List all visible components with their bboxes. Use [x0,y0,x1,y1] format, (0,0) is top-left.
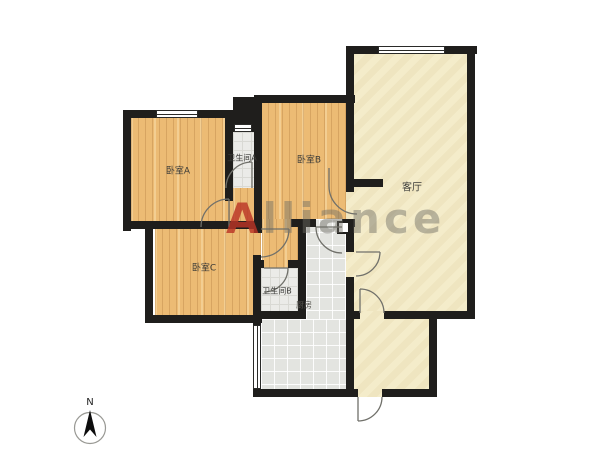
room-label-bathroom-a: 卫生间A [227,153,256,164]
door-arc-bedroom-c [261,229,289,257]
compass-north-label: N [86,397,93,408]
compass: N [75,397,106,444]
floorplan-canvas: N 卧室A 卫生间A 卧室B 卧室C 卫生间B 厨房 客厅 Alliance [0,0,600,450]
doors-and-compass-overlay: N [0,0,600,450]
room-label-living-room: 客厅 [402,179,422,194]
door-arc-kitchen [316,227,342,253]
door-arc-main-entrance [358,397,382,421]
room-label-bedroom-c: 卧室C [192,261,216,274]
room-label-kitchen: 厨房 [296,300,312,311]
door-arc-living-kitchen [356,252,380,276]
door-arc-bathroom-a [226,162,252,188]
room-label-bathroom-b: 卫生间B [262,286,292,297]
room-label-bedroom-b: 卧室B [297,153,321,166]
room-label-bedroom-a: 卧室A [166,164,190,177]
door-arc-bedroom-b [329,168,357,214]
door-arc-bedroom-a [201,199,229,227]
door-arc-living-entry [360,289,384,313]
